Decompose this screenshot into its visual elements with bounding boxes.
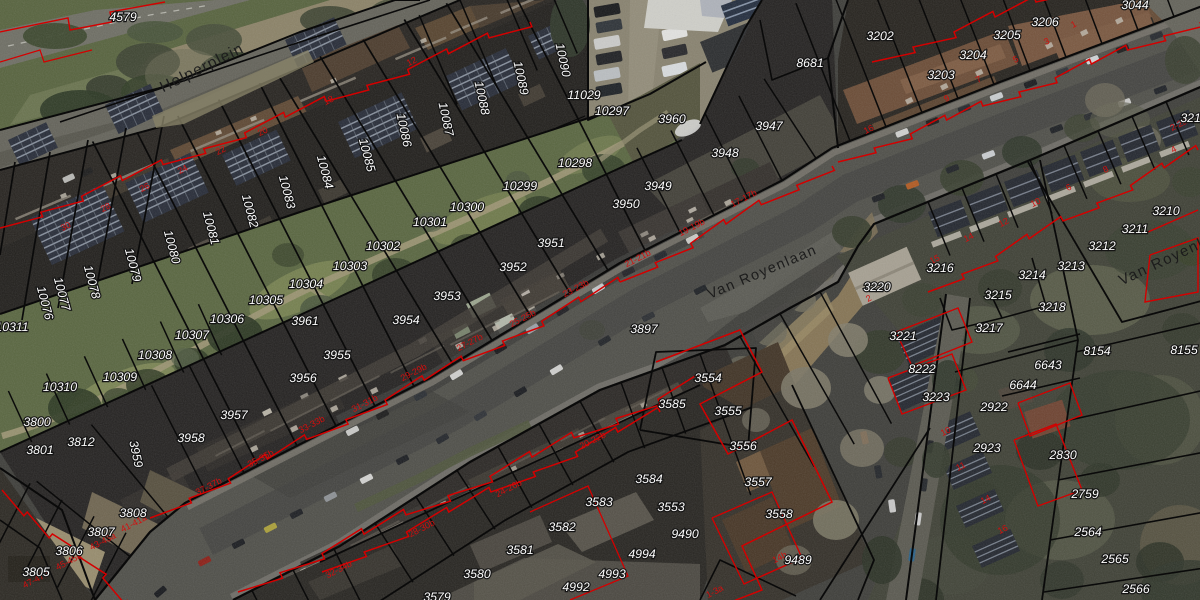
- svg-text:3579: 3579: [423, 590, 451, 600]
- svg-text:3558: 3558: [765, 507, 793, 521]
- svg-text:10308: 10308: [138, 348, 172, 362]
- svg-text:3580: 3580: [463, 567, 491, 581]
- svg-text:3557: 3557: [744, 475, 773, 489]
- svg-text:3953: 3953: [433, 289, 461, 303]
- svg-text:3216: 3216: [926, 261, 954, 275]
- svg-text:2923: 2923: [972, 441, 1001, 455]
- svg-text:10302: 10302: [366, 239, 400, 253]
- svg-text:10298: 10298: [558, 156, 592, 170]
- svg-text:3202: 3202: [866, 29, 894, 43]
- svg-text:3949: 3949: [644, 179, 672, 193]
- svg-text:2759: 2759: [1070, 487, 1099, 501]
- svg-text:3582: 3582: [548, 520, 576, 534]
- svg-text:3958: 3958: [177, 431, 205, 445]
- svg-text:10299: 10299: [503, 179, 537, 193]
- svg-text:3223: 3223: [922, 390, 950, 404]
- svg-text:10307: 10307: [175, 328, 210, 342]
- svg-text:9490: 9490: [671, 527, 699, 541]
- svg-text:3957: 3957: [220, 408, 249, 422]
- svg-text:4992: 4992: [562, 580, 590, 594]
- svg-text:9489: 9489: [784, 553, 812, 567]
- svg-text:4993: 4993: [598, 567, 626, 581]
- svg-text:3206: 3206: [1031, 15, 1059, 29]
- svg-text:3044: 3044: [1121, 0, 1149, 12]
- svg-text:3581: 3581: [506, 543, 533, 557]
- svg-text:3210: 3210: [1152, 204, 1180, 218]
- svg-text:10297: 10297: [595, 104, 630, 118]
- svg-text:10305: 10305: [249, 293, 283, 307]
- svg-text:10304: 10304: [289, 277, 323, 291]
- svg-text:3950: 3950: [612, 197, 640, 211]
- svg-text:3211: 3211: [1122, 222, 1148, 236]
- svg-text:6644: 6644: [1009, 378, 1037, 392]
- svg-text:10311: 10311: [0, 320, 29, 334]
- svg-text:3812: 3812: [67, 435, 95, 449]
- svg-text:3947: 3947: [755, 119, 784, 133]
- svg-text:3961: 3961: [291, 314, 318, 328]
- svg-text:3215: 3215: [984, 288, 1012, 302]
- svg-text:2922: 2922: [979, 400, 1008, 414]
- svg-text:8681: 8681: [796, 56, 823, 70]
- svg-text:3955: 3955: [323, 348, 351, 362]
- svg-text:3951: 3951: [537, 236, 564, 250]
- svg-text:3897: 3897: [630, 322, 659, 336]
- svg-text:10301: 10301: [413, 215, 447, 229]
- svg-text:11029: 11029: [567, 88, 600, 102]
- svg-text:3217: 3217: [975, 321, 1004, 335]
- svg-text:8154: 8154: [1083, 344, 1111, 358]
- svg-text:8155: 8155: [1170, 343, 1198, 357]
- svg-text:3205: 3205: [993, 28, 1021, 42]
- svg-text:3555: 3555: [714, 404, 742, 418]
- svg-text:3214: 3214: [1018, 268, 1046, 282]
- svg-text:2565: 2565: [1100, 552, 1129, 566]
- svg-text:3584: 3584: [635, 472, 663, 486]
- svg-text:3220: 3220: [863, 280, 891, 294]
- svg-text:3219: 3219: [1180, 111, 1200, 125]
- svg-text:3954: 3954: [392, 313, 420, 327]
- svg-text:3204: 3204: [959, 48, 987, 62]
- svg-text:10306: 10306: [210, 312, 244, 326]
- svg-text:3805: 3805: [22, 565, 50, 579]
- svg-text:3952: 3952: [499, 260, 527, 274]
- svg-text:3212: 3212: [1088, 239, 1116, 253]
- svg-text:3801: 3801: [26, 443, 53, 457]
- svg-text:3218: 3218: [1038, 300, 1066, 314]
- svg-text:2564: 2564: [1073, 525, 1102, 539]
- svg-text:10303: 10303: [333, 259, 367, 273]
- svg-text:6643: 6643: [1034, 358, 1062, 372]
- svg-text:3948: 3948: [711, 146, 739, 160]
- svg-text:3203: 3203: [927, 68, 955, 82]
- svg-text:3583: 3583: [585, 495, 613, 509]
- svg-text:3800: 3800: [23, 415, 51, 429]
- svg-text:10309: 10309: [103, 370, 137, 384]
- svg-text:3807: 3807: [87, 525, 116, 539]
- svg-text:3213: 3213: [1057, 259, 1085, 273]
- svg-text:3221: 3221: [889, 329, 916, 343]
- svg-text:3556: 3556: [729, 439, 757, 453]
- svg-text:3806: 3806: [55, 544, 83, 558]
- svg-text:4994: 4994: [628, 547, 656, 561]
- svg-text:2566: 2566: [1121, 582, 1150, 596]
- svg-text:3585: 3585: [658, 397, 686, 411]
- svg-text:3956: 3956: [289, 371, 317, 385]
- svg-text:10310: 10310: [43, 380, 77, 394]
- svg-text:10300: 10300: [450, 200, 484, 214]
- svg-text:3554: 3554: [694, 371, 722, 385]
- svg-text:2830: 2830: [1048, 448, 1077, 462]
- svg-text:3960: 3960: [658, 112, 686, 126]
- svg-text:3808: 3808: [119, 506, 147, 520]
- svg-text:4579: 4579: [109, 10, 137, 24]
- svg-text:3553: 3553: [657, 500, 685, 514]
- svg-text:8222: 8222: [908, 362, 936, 376]
